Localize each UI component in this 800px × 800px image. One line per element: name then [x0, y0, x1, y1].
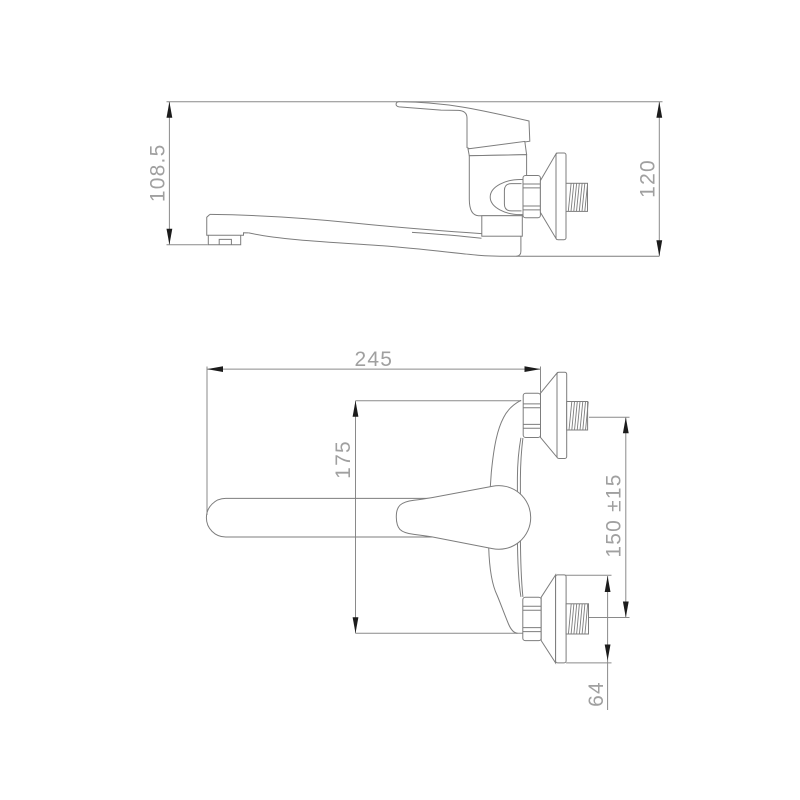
svg-text:108.5: 108.5 [147, 144, 170, 203]
svg-text:120: 120 [636, 159, 659, 198]
svg-text:64: 64 [585, 681, 608, 707]
svg-text:150 ±15: 150 ±15 [603, 473, 626, 557]
svg-text:175: 175 [332, 440, 355, 479]
svg-text:245: 245 [354, 348, 393, 371]
